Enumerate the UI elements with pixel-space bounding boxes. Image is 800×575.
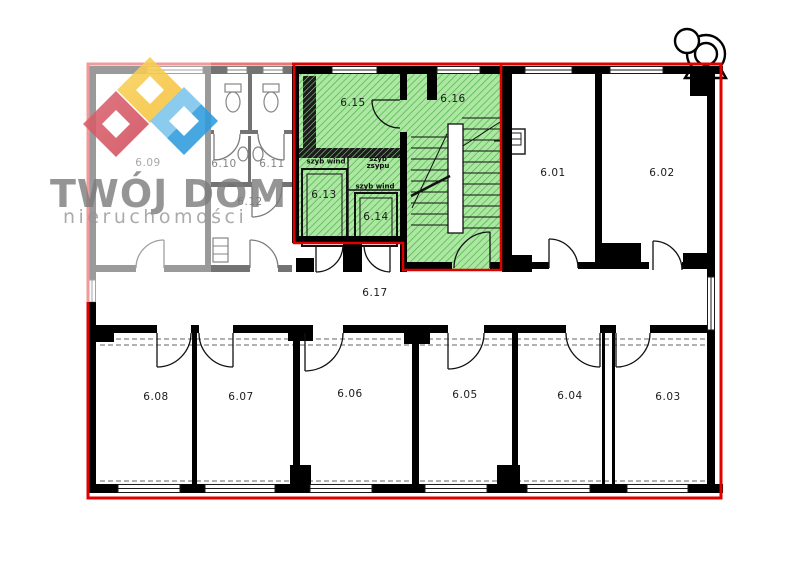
cabinet — [213, 238, 228, 262]
door — [136, 240, 164, 268]
sink-icon — [253, 147, 263, 161]
window — [227, 67, 247, 74]
window — [332, 67, 377, 74]
door — [549, 239, 578, 268]
floor-plan-image: 6.016.026.036.046.056.066.076.086.096.10… — [0, 0, 800, 575]
window — [310, 485, 372, 493]
window — [527, 485, 590, 493]
window — [205, 485, 275, 493]
door — [157, 333, 191, 367]
door — [199, 333, 233, 367]
toilet-icon — [225, 84, 241, 112]
door — [448, 333, 484, 369]
window — [627, 485, 688, 493]
beam-dashed-lines — [100, 339, 710, 481]
door — [252, 187, 282, 217]
window — [118, 485, 180, 493]
door — [364, 246, 390, 272]
window — [147, 67, 203, 74]
sink-icon — [238, 147, 248, 161]
window — [708, 277, 715, 330]
window — [610, 67, 663, 74]
door — [316, 246, 343, 272]
stair-stringer — [448, 124, 463, 233]
toilet-icon — [263, 84, 279, 112]
window — [89, 280, 96, 302]
window — [263, 67, 283, 74]
door — [214, 134, 240, 160]
floor-plan-drawing — [0, 0, 800, 575]
door — [653, 241, 682, 270]
window — [425, 485, 487, 493]
door — [616, 333, 650, 367]
window — [525, 67, 572, 74]
door — [250, 240, 278, 268]
window — [437, 67, 480, 74]
door — [566, 333, 600, 367]
